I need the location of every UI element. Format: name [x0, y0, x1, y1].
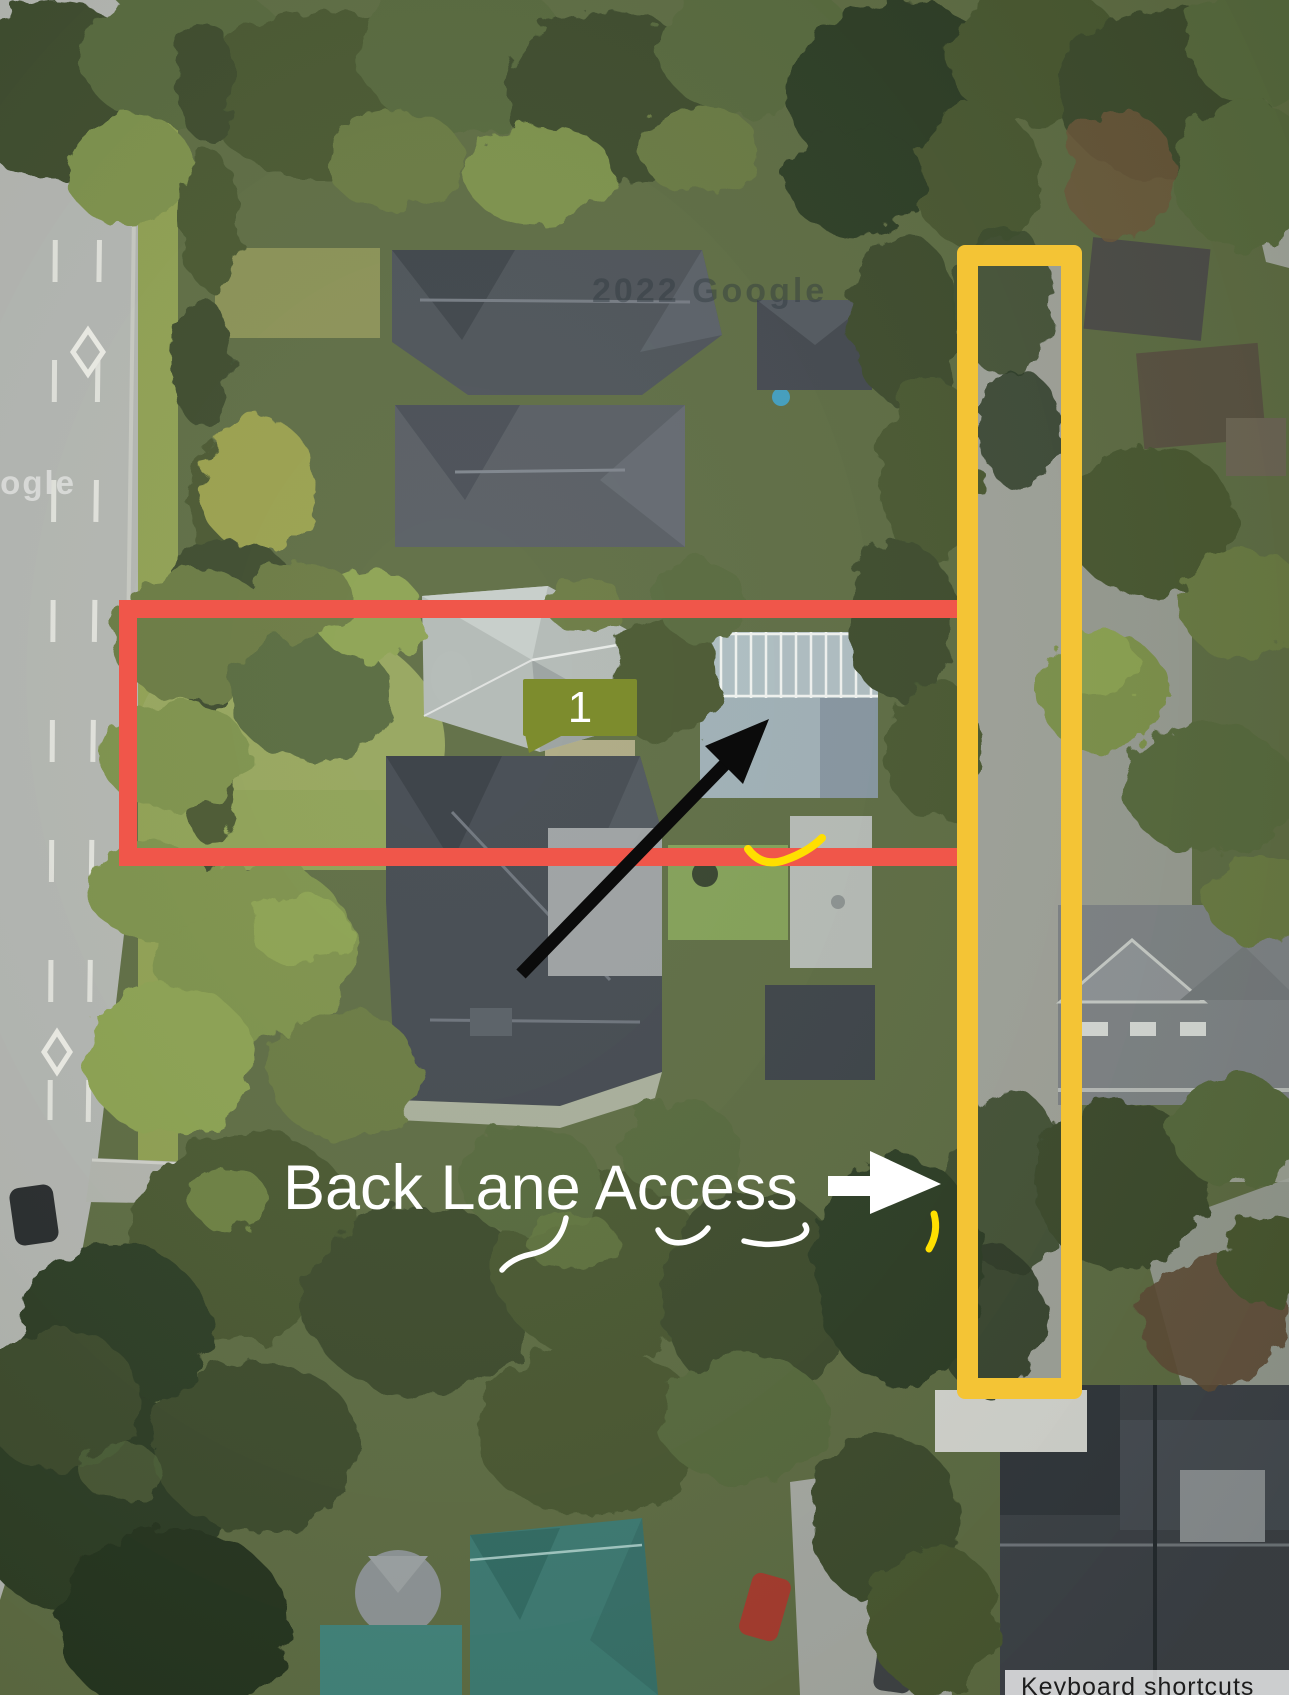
back-lane-access-label: Back Lane Access: [283, 1152, 798, 1224]
map-viewport[interactable]: 1 Back Lane Access 2022 Google oogle Key…: [0, 0, 1289, 1695]
parcel-1-marker: 1: [523, 679, 637, 736]
google-watermark-top: 2022 Google: [592, 272, 827, 311]
footer-bar: Keyboard shortcuts: [1005, 1670, 1289, 1695]
google-watermark-partial: oogle: [0, 464, 76, 502]
parcel-1-marker-label: 1: [568, 686, 592, 730]
yellow-lane-outline: [957, 245, 1082, 1399]
keyboard-shortcuts-button[interactable]: Keyboard shortcuts: [1021, 1673, 1289, 1695]
